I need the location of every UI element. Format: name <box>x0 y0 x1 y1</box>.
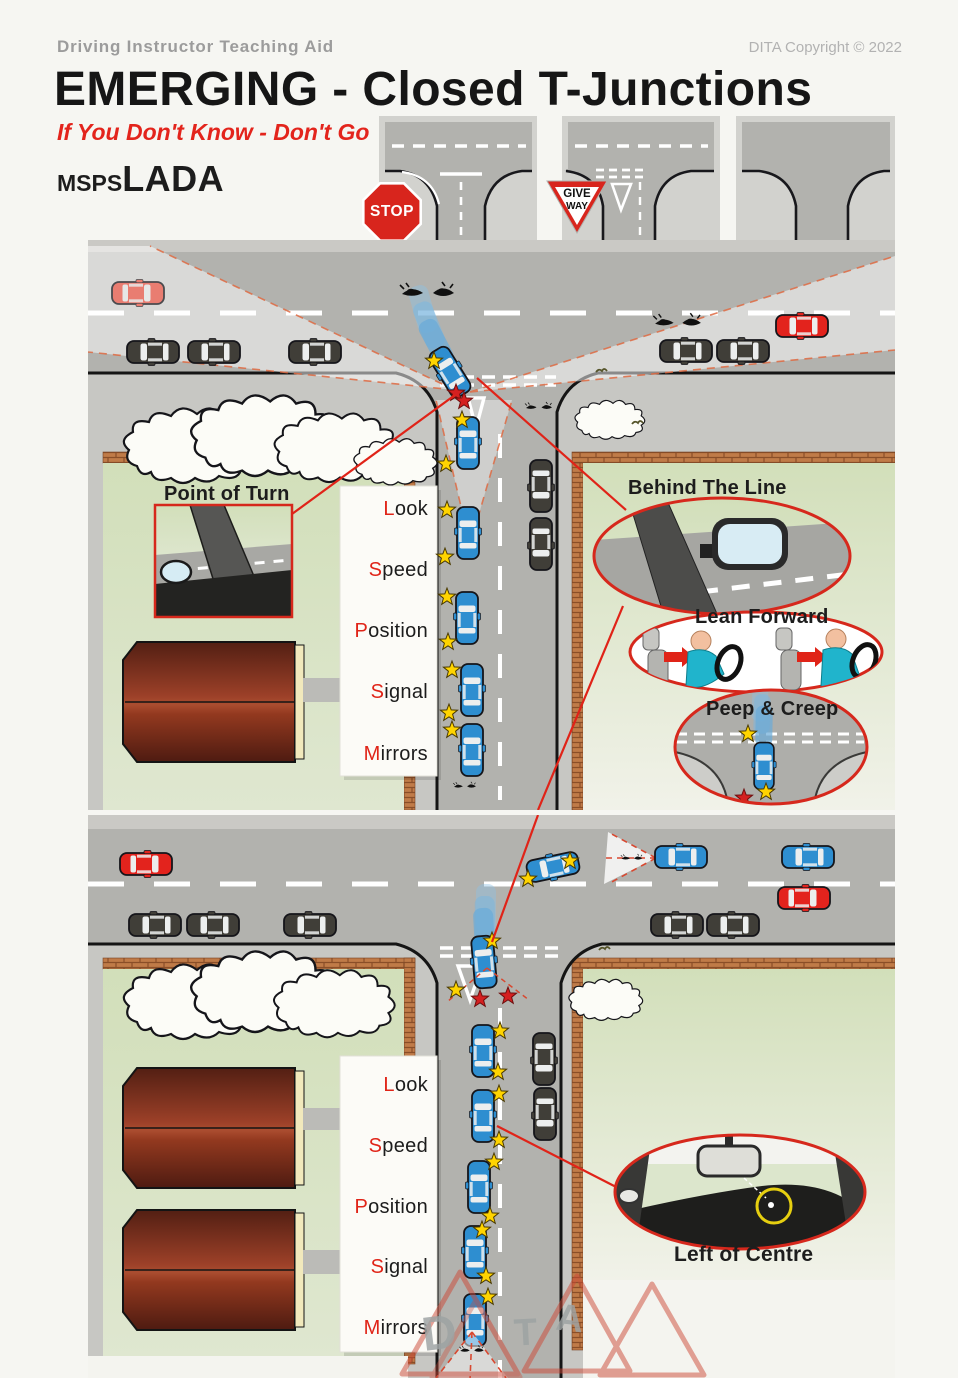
give-way-sign-label-top: GIVE <box>548 188 606 200</box>
left-of-centre-label: Left of Centre <box>674 1243 813 1267</box>
car-icon <box>127 339 179 366</box>
car-icon <box>528 518 555 570</box>
watermark-letter-d: D <box>419 1304 460 1363</box>
peep-and-creep-label: Peep & Creep <box>706 698 838 721</box>
mspsl-look: Look <box>336 498 428 521</box>
car-icon <box>112 280 164 307</box>
mspsl-signal: Signal <box>336 681 428 704</box>
stop-sign-label: STOP <box>363 203 421 221</box>
car-icon <box>528 460 555 512</box>
behind-the-line-label: Behind The Line <box>628 477 787 500</box>
give-way-junction-diagram <box>562 116 720 244</box>
page-title: EMERGING - Closed T-Junctions <box>54 62 812 117</box>
mspsl-position: Position <box>336 1196 428 1219</box>
car-icon <box>532 1088 559 1140</box>
tagline: If You Don't Know - Don't Go <box>57 119 369 146</box>
car-icon <box>707 912 759 939</box>
mspsl-position: Position <box>336 620 428 643</box>
car-icon <box>187 912 239 939</box>
car-icon <box>284 912 336 939</box>
building <box>123 1210 304 1330</box>
car-icon <box>454 592 481 644</box>
car-icon <box>531 1033 558 1085</box>
upper-junction-illustration <box>88 240 895 810</box>
car-icon <box>459 664 486 716</box>
watermark-letter-t: T <box>513 1311 538 1355</box>
car-icon <box>129 912 181 939</box>
mspsl-look: Look <box>336 1074 428 1097</box>
car-icon <box>778 885 830 912</box>
lean-forward-label: Lean Forward <box>695 606 829 629</box>
page-subtitle: Driving Instructor Teaching Aid <box>57 37 334 57</box>
point-of-turn-inset <box>155 505 292 617</box>
building <box>123 642 304 762</box>
point-of-turn-label: Point of Turn <box>164 483 290 506</box>
unmarked-junction-diagram <box>736 116 895 244</box>
mspsl-mirrors: Mirrors <box>336 743 428 766</box>
watermark-letter-a: A <box>554 1297 586 1343</box>
acronym-lada: LADA <box>122 158 224 200</box>
mspsl-speed: Speed <box>336 1135 428 1158</box>
lower-junction-illustration <box>88 815 895 1378</box>
left-of-centre-callout <box>615 1134 867 1250</box>
junction-types-strip <box>355 112 895 244</box>
building <box>123 1068 304 1188</box>
car-icon <box>782 844 834 871</box>
mspsl-speed: Speed <box>336 559 428 582</box>
mspsl-signal: Signal <box>336 1256 428 1279</box>
car-icon <box>717 338 769 365</box>
car-icon <box>776 313 828 340</box>
give-way-sign-label-bottom: WAY <box>548 201 606 212</box>
teaching-aid-page: Driving Instructor Teaching Aid DITA Cop… <box>0 0 958 1378</box>
car-icon <box>660 338 712 365</box>
mspslada-acronym: MSPSLADA <box>57 158 224 200</box>
copyright-notice: DITA Copyright © 2022 <box>749 39 902 56</box>
mspsl-mirrors: Mirrors <box>336 1317 428 1340</box>
acronym-msps: MSPS <box>57 170 122 197</box>
car-icon <box>655 844 707 871</box>
car-icon <box>120 851 172 878</box>
car-icon <box>289 339 341 366</box>
car-icon <box>651 912 703 939</box>
car-icon <box>455 507 482 559</box>
car-icon <box>470 1090 497 1142</box>
car-icon <box>188 339 240 366</box>
car-icon <box>459 724 486 776</box>
